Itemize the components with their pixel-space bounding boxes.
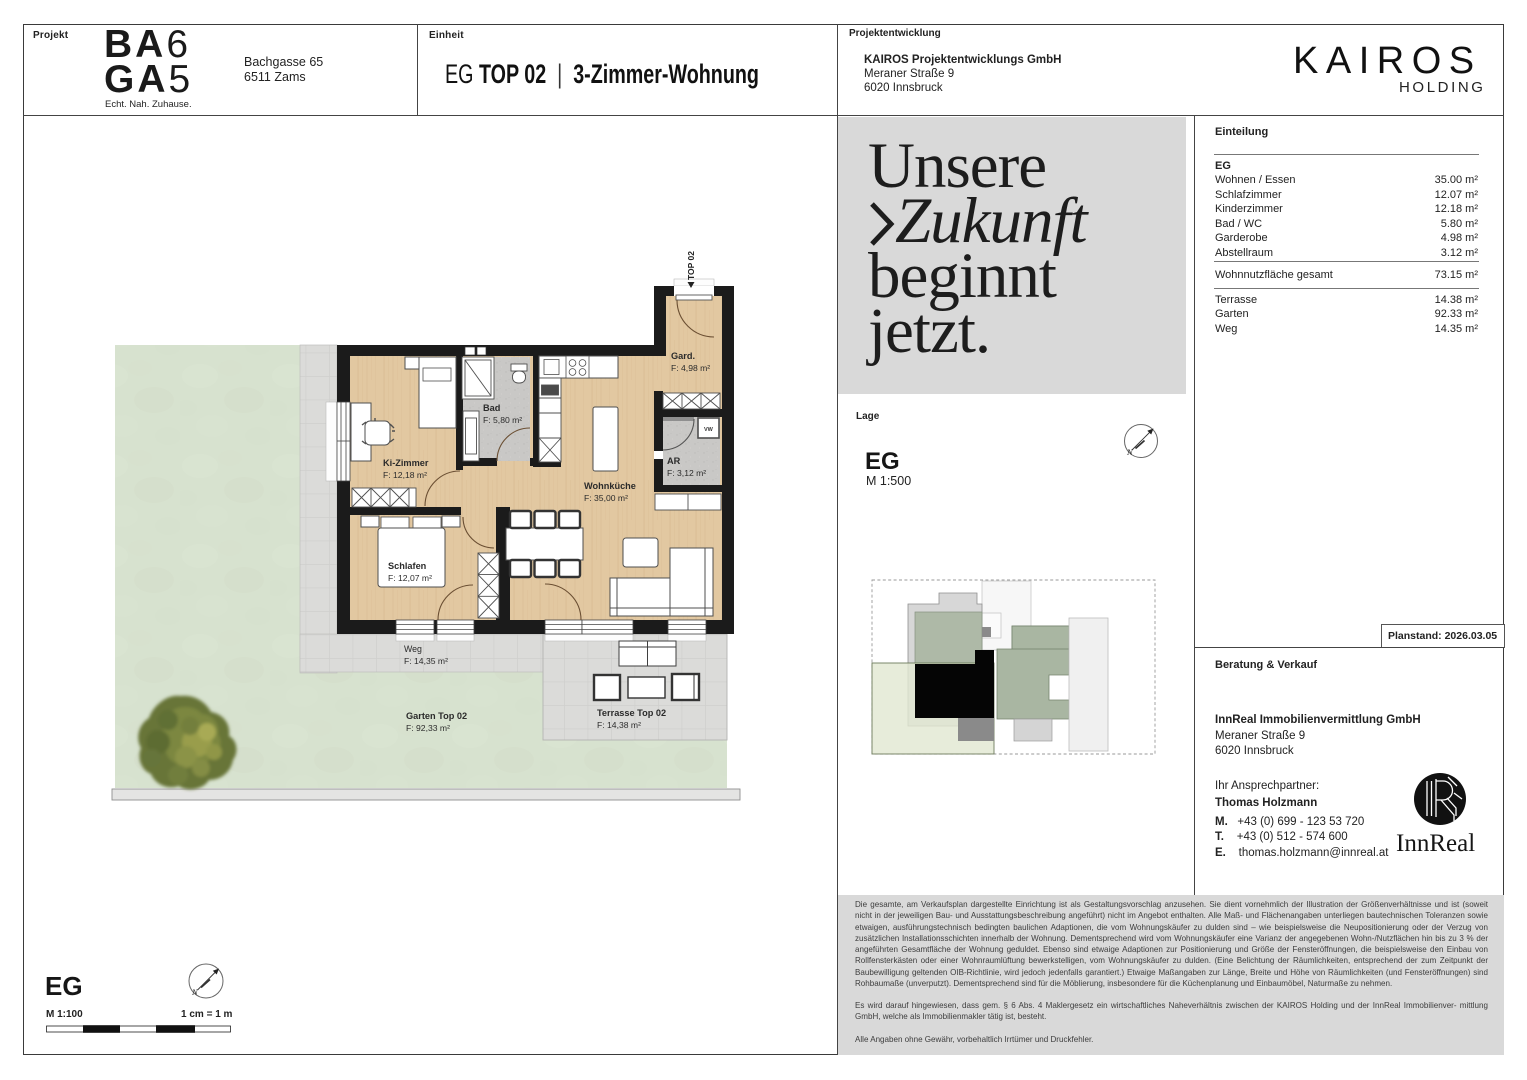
svg-text:Weg: Weg (404, 644, 422, 654)
svg-text:VW: VW (704, 427, 714, 433)
svg-text:Garten Top 02: Garten Top 02 (406, 711, 467, 721)
svg-text:Bad: Bad (483, 403, 500, 413)
svg-text:F: 4,98 m²: F: 4,98 m² (671, 363, 710, 373)
svg-text:F: 35,00 m²: F: 35,00 m² (584, 493, 628, 503)
svg-text:Ki-Zimmer: Ki-Zimmer (383, 458, 429, 468)
svg-text:EG: EG (45, 971, 83, 1001)
svg-text:F: 14,38 m²: F: 14,38 m² (597, 720, 641, 730)
svg-text:F: 5,80 m²: F: 5,80 m² (483, 415, 522, 425)
svg-text:F: 92,33 m²: F: 92,33 m² (406, 723, 450, 733)
svg-text:Terrasse Top 02: Terrasse Top 02 (597, 708, 666, 718)
svg-text:Schlafen: Schlafen (388, 561, 427, 571)
svg-text:F: 14,35 m²: F: 14,35 m² (404, 656, 448, 666)
svg-text:F: 12,18 m²: F: 12,18 m² (383, 470, 427, 480)
svg-text:M 1:100: M 1:100 (46, 1009, 83, 1020)
svg-text:Wohnküche: Wohnküche (584, 481, 636, 491)
svg-text:1 cm = 1 m: 1 cm = 1 m (181, 1009, 233, 1020)
svg-text:Gard.: Gard. (671, 351, 695, 361)
svg-text:AR: AR (667, 456, 681, 466)
svg-text:F: 12,07 m²: F: 12,07 m² (388, 573, 432, 583)
svg-text:TOP 02: TOP 02 (686, 251, 696, 280)
svg-text:F: 3,12 m²: F: 3,12 m² (667, 468, 706, 478)
